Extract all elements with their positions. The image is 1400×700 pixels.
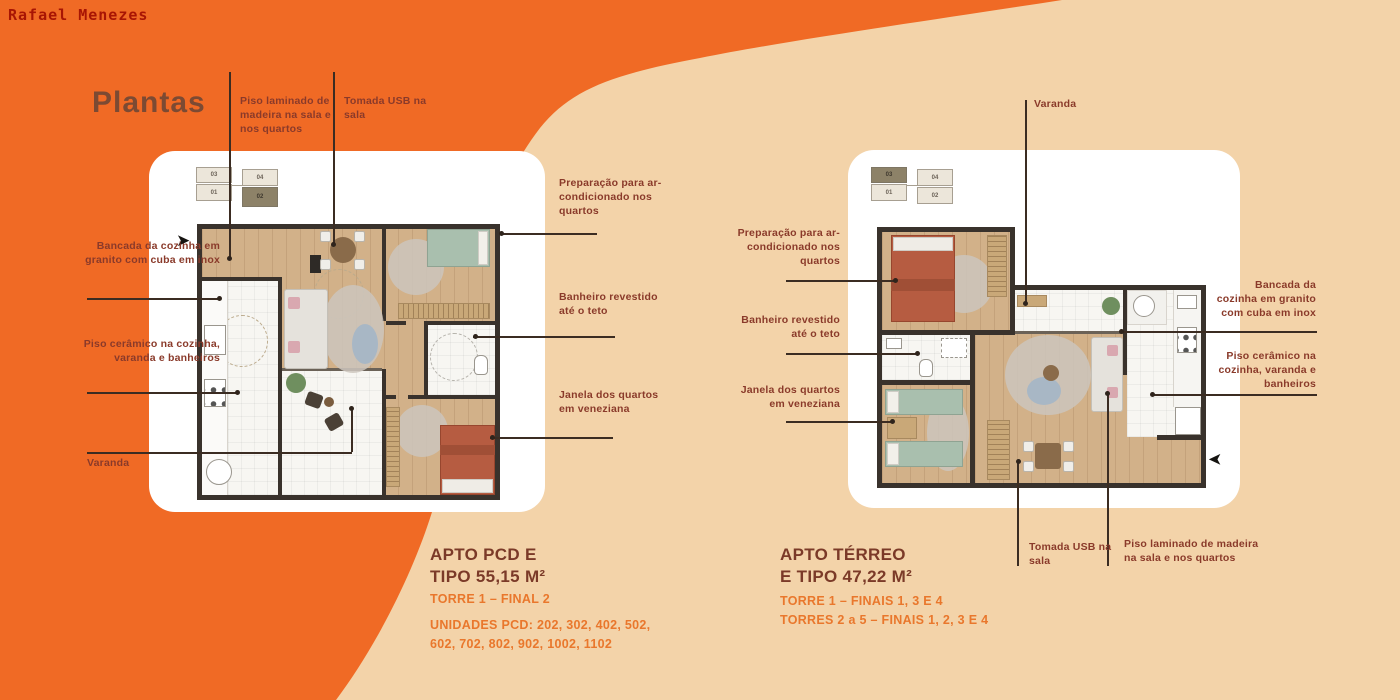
annotation-tomada-usb: Tomada USB na sala [344,95,429,123]
wall [970,335,975,380]
annotation-line [1120,331,1317,333]
annotation-dot [473,334,478,339]
annotation-preparacao: Preparação para ar-condicionado nos quar… [559,177,664,219]
right-caption-title: APTO TÉRREO E TIPO 47,22 M² [780,544,912,588]
coffee-table [1043,365,1059,381]
annotation-line [1151,394,1317,396]
annotation-dot [1105,391,1110,396]
brochure-page: Rafael Menezes Plantas 03 01 04 02 [0,0,1400,700]
chair [320,231,331,242]
chair [1023,441,1034,452]
annotation-line [490,437,613,439]
wall [877,227,882,488]
annotation-line [229,72,231,260]
wall [1201,285,1206,488]
bed-pillow [887,391,899,413]
side-table [324,397,334,407]
fridge [1175,407,1201,435]
left-caption-title-line1: APTO PCD E [430,544,545,566]
bed-pillows [893,237,953,251]
toilet [474,355,488,375]
left-caption-torre: TORRE 1 – FINAL 2 [430,590,550,609]
building-key-right: 03 01 04 02 [871,164,955,210]
annotation-preparacao: Preparação para ar-condicionado nos quar… [735,227,840,269]
dining-table [1035,443,1061,469]
wall [1157,435,1206,440]
annotation-dot [499,231,504,236]
annotation-tomada-usb: Tomada USB na sala [1029,541,1119,569]
annotation-bancada: Bancada da cozinha em granito com cuba e… [80,240,220,268]
wall [382,229,386,321]
key-unit-03-highlighted: 03 [871,167,907,183]
annotation-line [87,392,239,394]
plant [286,373,306,393]
key-unit-02-highlighted: 02 [242,187,278,207]
wall [970,385,975,483]
chair [1063,441,1074,452]
shower-area [430,333,478,381]
left-caption-title-line2: TIPO 55,15 M² [430,566,545,588]
annotation-dot [490,435,495,440]
annotation-varanda: Varanda [1034,98,1076,112]
wall [278,277,282,495]
wardrobe [987,420,1010,480]
annotation-dot [890,419,895,424]
annotation-dot [349,406,354,411]
rug-accent [1027,377,1061,405]
sofa-cushion [288,341,300,353]
annotation-dot [235,390,240,395]
annotation-dot [1150,392,1155,397]
wall [877,330,1015,335]
bed-fold [891,279,955,291]
annotation-banheiro: Banheiro revestido até o teto [559,291,659,319]
right-caption-title-line2: E TIPO 47,22 M² [780,566,912,588]
bed-pillow [887,443,899,465]
annotation-line [351,408,353,452]
page-title: Plantas [92,88,206,118]
key-unit-01: 01 [196,184,232,201]
right-caption-title-line1: APTO TÉRREO [780,544,912,566]
washer [206,459,232,485]
key-unit-01: 01 [871,184,907,201]
annotation-line [786,421,894,423]
wall [386,395,396,399]
bed-pillows [442,479,493,493]
wall [877,227,1015,232]
chair [354,231,365,242]
sofa-cushion [288,297,300,309]
wall [386,321,406,325]
annotation-dot [893,278,898,283]
key-unit-04: 04 [242,169,278,186]
annotation-dot [915,351,920,356]
key-unit-04: 04 [917,169,953,186]
bench [1017,295,1047,307]
chair [1063,461,1074,472]
washer [1133,295,1155,317]
annotation-janela: Janela dos quartos em veneziana [559,389,659,417]
wardrobe [386,407,400,487]
rug-accent [352,324,378,364]
sofa-cushion [1107,345,1118,356]
annotation-piso-laminado: Piso laminado de madeira na sala e nos q… [1124,538,1269,566]
plant [1102,297,1120,315]
annotation-varanda: Varanda [87,457,129,471]
annotation-janela: Janela dos quartos em veneziana [740,384,840,412]
sink [886,338,902,349]
entry-arrow-icon: ➤ [1208,450,1222,467]
wall [877,380,975,385]
wall [424,325,428,395]
chair [320,259,331,270]
floorplan-right [877,227,1206,488]
annotation-line [786,353,919,355]
key-unit-03: 03 [196,167,232,183]
annotation-bancada: Bancada da cozinha em granito com cuba e… [1216,279,1316,321]
annotation-piso-ceramico: Piso cerâmico na cozinha, varanda e banh… [80,338,220,366]
toilet [919,359,933,377]
chair [354,259,365,270]
bed-pillows [478,231,488,265]
annotation-dot [1119,329,1124,334]
right-caption-torre-1: TORRE 1 – FINAIS 1, 3 E 4 [780,592,943,611]
watermark-credit: Rafael Menezes [8,6,148,24]
key-unit-02: 02 [917,187,953,204]
floorplan-left [197,224,500,500]
wall [877,483,1206,488]
annotation-dot [217,296,222,301]
annotation-piso-ceramico: Piso cerâmico na cozinha, varanda e banh… [1216,350,1316,392]
sink [1177,295,1197,309]
annotation-dot [331,242,336,247]
wall [408,395,495,399]
bed-fold [440,445,495,455]
wall [1010,227,1015,335]
annotation-line [473,336,615,338]
annotation-line [87,452,352,454]
annotation-line [786,280,897,282]
annotation-line [1107,392,1109,566]
wall [424,321,495,325]
wardrobe [398,303,490,319]
annotation-line [1017,460,1019,566]
annotation-piso-laminado: Piso laminado de madeira na sala e nos q… [240,95,335,137]
annotation-dot [227,256,232,261]
annotation-banheiro: Banheiro revestido até o teto [740,314,840,342]
annotation-line [500,233,597,235]
left-caption-title: APTO PCD E TIPO 55,15 M² [430,544,545,588]
shower-area [941,338,967,358]
annotation-line [87,298,221,300]
annotation-line [1025,100,1027,305]
varanda-door-rail [1015,331,1123,334]
building-key-left: 03 01 04 02 [196,164,280,210]
chair [1023,461,1034,472]
annotation-dot [1023,301,1028,306]
right-caption-torre-2: TORRES 2 a 5 – FINAIS 1, 2, 3 E 4 [780,611,988,630]
left-caption-unidades: UNIDADES PCD: 202, 302, 402, 502, 602, 7… [430,616,670,654]
annotation-dot [1016,459,1021,464]
rug [322,285,384,373]
wardrobe [987,235,1007,297]
